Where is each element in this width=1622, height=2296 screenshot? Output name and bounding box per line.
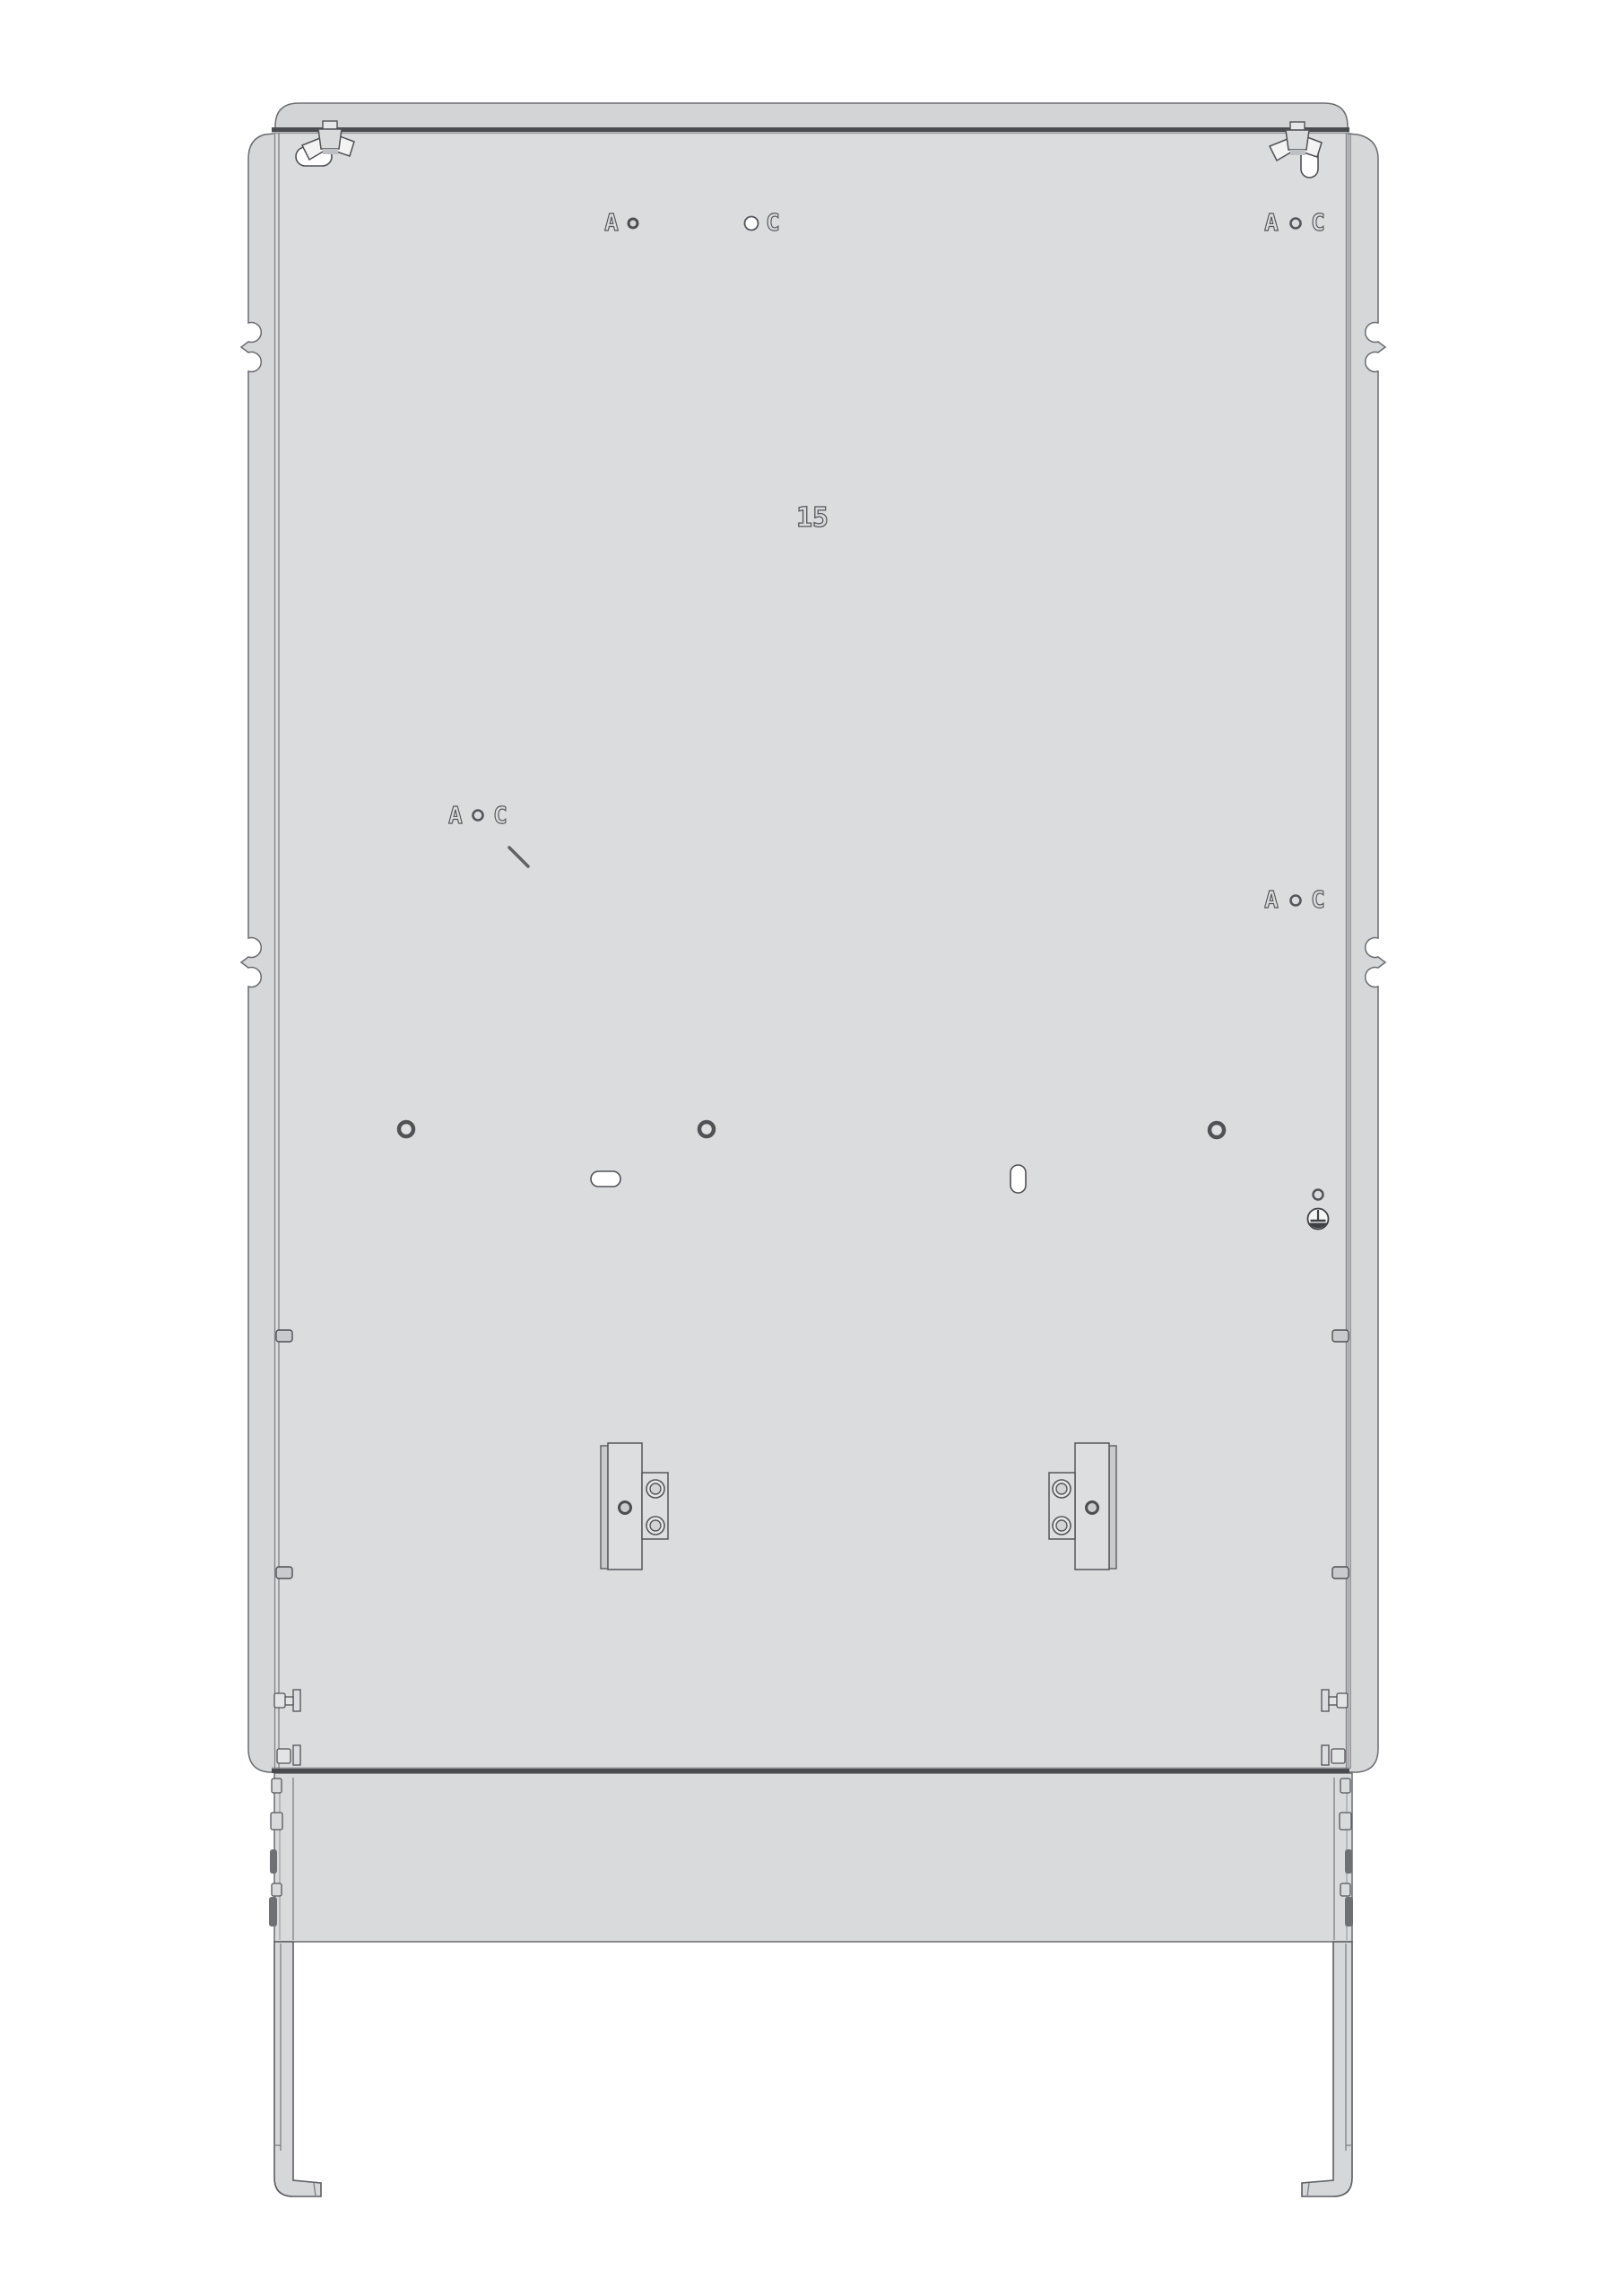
marking-letter-c: C — [766, 210, 780, 237]
wing-nut-icon — [1290, 150, 1305, 155]
panel-bottom-edge-highlight — [272, 1768, 1349, 1770]
bracket-hole — [1087, 1502, 1098, 1514]
base-hinge-knuckle — [270, 1849, 277, 1874]
right-leg — [1302, 1942, 1352, 2196]
right-side-flange — [1348, 134, 1385, 1772]
wing-nut-icon — [323, 121, 337, 129]
cable-slot-horizontal — [591, 1171, 620, 1187]
panel-top-edge-highlight — [272, 133, 1349, 135]
marking-letter-c: C — [1311, 210, 1325, 237]
latch-bolt-icon — [1337, 1693, 1348, 1708]
panel-bottom-edge — [272, 1769, 1349, 1773]
left-leg-profile — [274, 1942, 321, 2196]
right-leg-profile — [1302, 1942, 1352, 2196]
marking-hole — [629, 219, 638, 228]
base-hinge-knuckle — [1345, 1849, 1352, 1874]
base-clip — [271, 1813, 282, 1830]
marking-letter-a: A — [448, 803, 463, 830]
panel-top-edge — [272, 127, 1349, 132]
mounting-hole — [699, 1122, 714, 1136]
edge-stud — [1332, 1330, 1349, 1342]
rear-panel-face — [273, 130, 1348, 1773]
latch-bolt-icon — [1331, 1749, 1345, 1763]
bracket-screw — [650, 1483, 661, 1494]
edge-stud — [276, 1567, 292, 1578]
mounting-hole — [399, 1122, 413, 1136]
marking-letter-c: C — [1311, 887, 1325, 914]
bracket-edge-strip — [1109, 1446, 1116, 1569]
bracket-screw — [650, 1520, 661, 1531]
base-hinge-knuckle — [1345, 1897, 1353, 1926]
base-panel — [269, 1773, 1353, 1942]
edge-stud — [1332, 1567, 1349, 1578]
wing-nut-icon — [318, 129, 342, 149]
latch-bolt-icon — [293, 1690, 300, 1711]
panel-number-marking: 15 — [796, 502, 828, 534]
latch-bolt-icon — [1322, 1745, 1329, 1765]
cable-slot-vertical — [1010, 1165, 1026, 1193]
base-clip — [1340, 1813, 1351, 1830]
marking-hole — [745, 217, 759, 230]
base-clip — [272, 1883, 282, 1896]
mounting-hole — [1210, 1123, 1224, 1137]
wing-nut-icon — [1286, 130, 1309, 150]
marking-letter-c: C — [493, 803, 507, 830]
wing-nut-icon — [323, 149, 338, 154]
ground-pilot-hole — [1314, 1190, 1323, 1200]
latch-bolt-icon — [274, 1693, 285, 1708]
base-clip — [1340, 1883, 1350, 1896]
marking-letter-a: A — [1264, 887, 1279, 914]
latch-bolt-icon — [277, 1749, 291, 1763]
left-leg — [274, 1942, 321, 2196]
base-front-face — [274, 1773, 1352, 1942]
base-clip — [272, 1779, 282, 1793]
cabinet-rear-view-drawing: A C A C A C A C 15 — [0, 0, 1622, 2296]
base-hinge-knuckle — [269, 1897, 277, 1926]
marking-letter-a: A — [604, 210, 619, 237]
bracket-screw — [1056, 1483, 1067, 1494]
marking-letter-a: A — [1264, 210, 1279, 237]
base-clip — [1340, 1779, 1350, 1793]
left-side-flange — [241, 134, 274, 1772]
edge-stud — [276, 1330, 292, 1342]
wing-nut-icon — [1290, 122, 1305, 130]
latch-bolt-icon — [293, 1745, 300, 1765]
latch-bolt-icon — [1322, 1690, 1329, 1711]
bracket-screw — [1056, 1520, 1067, 1531]
bracket-edge-strip — [601, 1446, 608, 1569]
cabinet-rear-view-svg: A C A C A C A C 15 — [0, 0, 1622, 2296]
bracket-hole — [620, 1502, 631, 1514]
